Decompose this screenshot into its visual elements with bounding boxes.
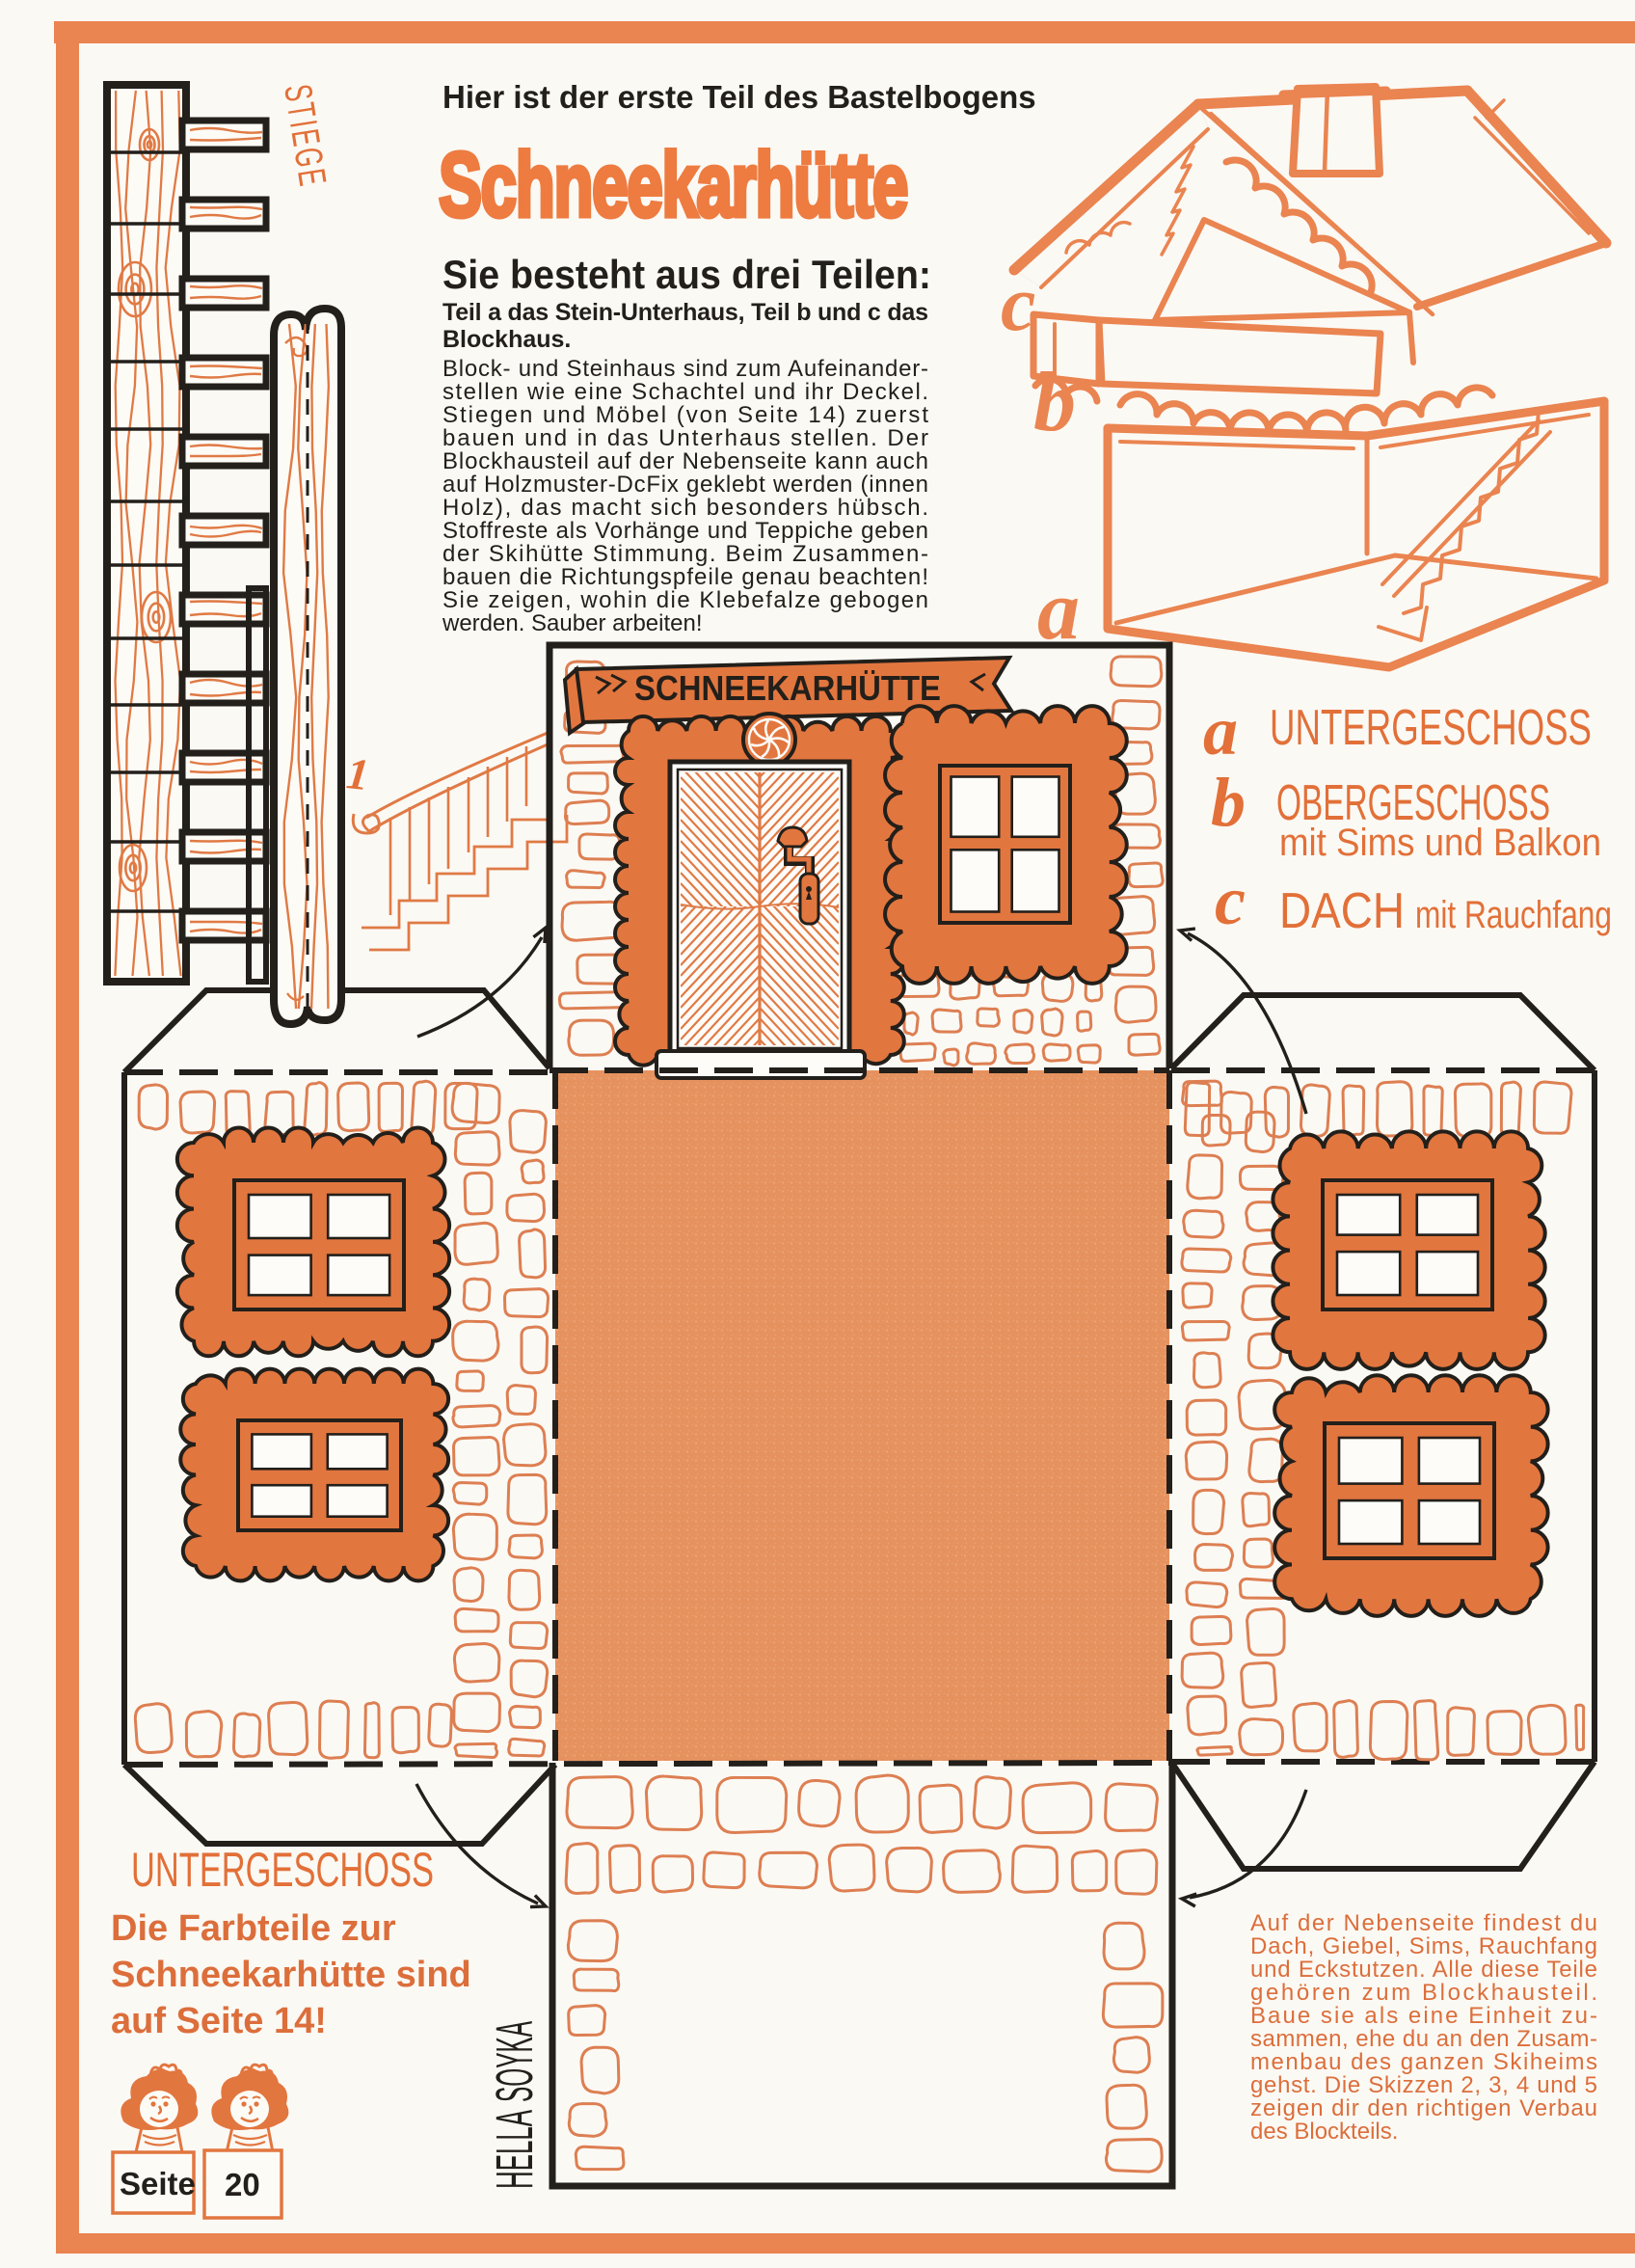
svg-text:bauen die Richtungspfeile gena: bauen die Richtungspfeile genau beachten… bbox=[442, 564, 928, 590]
svg-text:UNTERGESCHOSS: UNTERGESCHOSS bbox=[1270, 700, 1592, 756]
svg-text:Sie besteht aus drei Teilen:: Sie besteht aus drei Teilen: bbox=[442, 252, 931, 297]
svg-text:c: c bbox=[1215, 862, 1246, 939]
svg-text:zeigen dir den richtigen Verba: zeigen dir den richtigen Verbau bbox=[1250, 2095, 1597, 2121]
svg-text:stellen wie eine Schachtel und: stellen wie eine Schachtel und ihr Decke… bbox=[442, 379, 928, 405]
svg-text:b: b bbox=[1033, 356, 1076, 449]
svg-text:gehören zum Blockhausteil.: gehören zum Blockhausteil. bbox=[1250, 1980, 1597, 2006]
svg-text:Stoffreste als Vorhänge und Te: Stoffreste als Vorhänge und Teppiche geb… bbox=[442, 518, 928, 544]
svg-text:20: 20 bbox=[225, 2167, 260, 2202]
svg-text:c: c bbox=[1001, 259, 1035, 347]
svg-text:menbau des ganzen Skiheims: menbau des ganzen Skiheims bbox=[1250, 2049, 1597, 2075]
svg-text:Blockhausteil auf der Nebensei: Blockhausteil auf der Nebenseite kann au… bbox=[442, 448, 928, 474]
svg-text:mit Rauchfang: mit Rauchfang bbox=[1415, 894, 1612, 936]
svg-text:Block- und Steinhaus sind zum: Block- und Steinhaus sind zum Aufeinande… bbox=[442, 356, 928, 382]
svg-text:SOYKA: SOYKA bbox=[486, 2021, 544, 2102]
svg-text:UNTERGESCHOSS: UNTERGESCHOSS bbox=[131, 1843, 434, 1897]
svg-text:Hier ist der erste Teil des Ba: Hier ist der erste Teil des Bastelbogens bbox=[442, 79, 1036, 115]
svg-text:mit Sims und Balkon: mit Sims und Balkon bbox=[1279, 822, 1601, 864]
svg-text:Die Farbteile zur: Die Farbteile zur bbox=[111, 1908, 396, 1949]
svg-text:Teil a das Stein-Unterhaus, Te: Teil a das Stein-Unterhaus, Teil b und c… bbox=[442, 299, 928, 326]
svg-text:Stiegen und Möbel (von Seite 1: Stiegen und Möbel (von Seite 14) zuerst bbox=[442, 402, 928, 428]
svg-text:Holz), das macht sich besonder: Holz), das macht sich besonders hübsch. bbox=[442, 495, 928, 521]
svg-text:SCHNEEKARHÜTTE: SCHNEEKARHÜTTE bbox=[634, 668, 941, 708]
svg-text:HELLA: HELLA bbox=[486, 2110, 544, 2189]
svg-text:b: b bbox=[1211, 764, 1246, 841]
svg-text:a: a bbox=[1203, 692, 1238, 769]
svg-text:des Blockteils.: des Blockteils. bbox=[1250, 2119, 1398, 2145]
svg-text:sammen, ehe du an den Zusam-: sammen, ehe du an den Zusam- bbox=[1250, 2026, 1597, 2052]
svg-text:DACH: DACH bbox=[1279, 883, 1405, 939]
svg-text:auf Seite 14!: auf Seite 14! bbox=[111, 2001, 327, 2041]
svg-text:werden. Sauber arbeiten!: werden. Sauber arbeiten! bbox=[442, 610, 703, 636]
svg-text:Blockhaus.: Blockhaus. bbox=[442, 326, 571, 353]
svg-text:Auf der Nebenseite findest du: Auf der Nebenseite findest du bbox=[1250, 1910, 1597, 1936]
svg-text:bauen und in das Unterhaus ste: bauen und in das Unterhaus stellen. Der bbox=[442, 425, 928, 451]
svg-text:Schneekarhütte sind: Schneekarhütte sind bbox=[111, 1955, 471, 1995]
svg-text:der Skihütte Stimmung. Beim Zu: der Skihütte Stimmung. Beim Zusammen- bbox=[442, 541, 928, 567]
svg-text:auf Holzmuster-DcFix geklebt w: auf Holzmuster-DcFix geklebt werden (inn… bbox=[442, 472, 928, 498]
svg-text:Baue sie als eine Einheit zu-: Baue sie als eine Einheit zu- bbox=[1250, 2003, 1597, 2029]
svg-text:gehst. Die Skizzen 2, 3, 4 und: gehst. Die Skizzen 2, 3, 4 und 5 bbox=[1250, 2072, 1597, 2098]
svg-text:Dach, Giebel, Sims, Rauchfang: Dach, Giebel, Sims, Rauchfang bbox=[1250, 1933, 1597, 1959]
svg-text:Seite: Seite bbox=[120, 2166, 196, 2201]
svg-text:und Eckstutzen. Alle diese Tei: und Eckstutzen. Alle diese Teile bbox=[1250, 1957, 1597, 1983]
svg-text:Sie zeigen, wohin die Klebefal: Sie zeigen, wohin die Klebefalze gebogen bbox=[442, 587, 928, 613]
svg-text:Schneekarhütte: Schneekarhütte bbox=[439, 134, 907, 236]
